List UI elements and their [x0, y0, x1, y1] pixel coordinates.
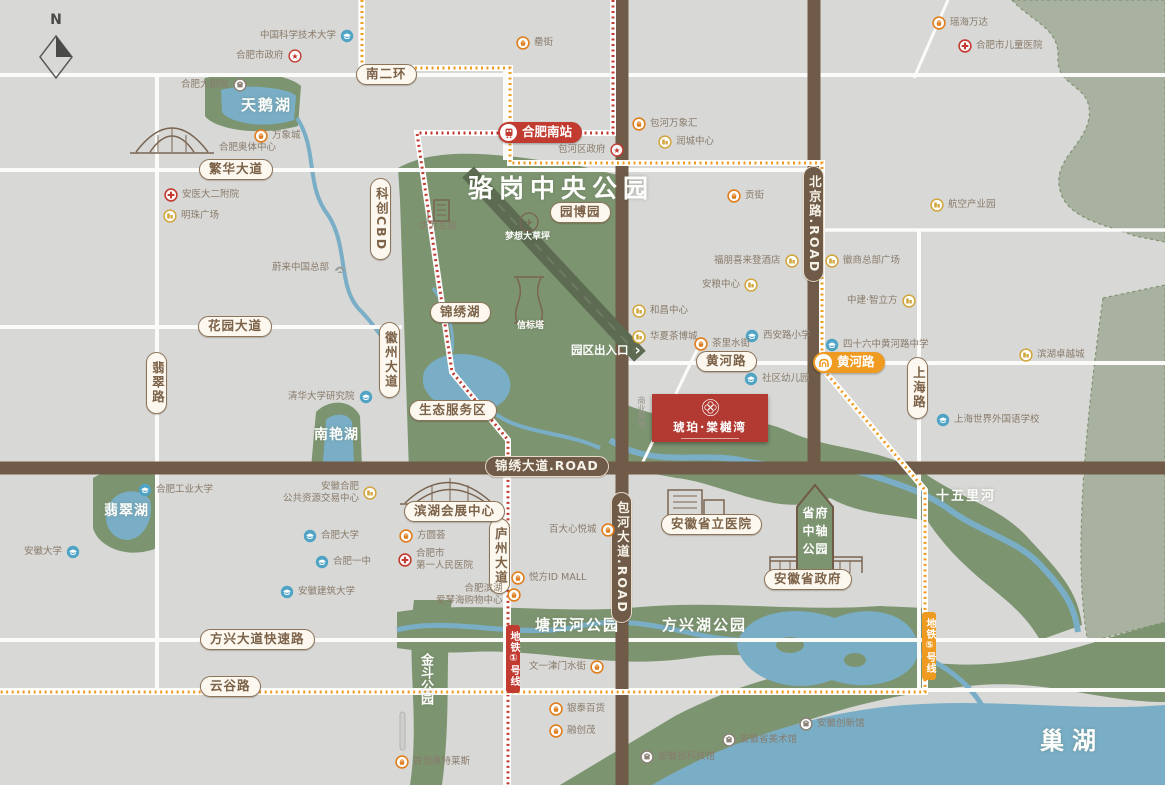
road-badge: 科创CBD	[370, 178, 391, 260]
area-label: 翡翠湖	[104, 504, 149, 518]
culture-icon	[640, 750, 654, 764]
road-badge: 安徽省政府	[764, 569, 852, 590]
poi-mall: 贡街	[727, 189, 764, 203]
poi-label: 合肥市第一人民医院	[416, 548, 473, 573]
poi-label-text: 上海世界外国语学校	[954, 414, 1040, 426]
mall-icon	[632, 117, 646, 131]
poi-label: 社区幼儿园	[762, 373, 810, 385]
poi-label-text: 文一津门水街	[529, 661, 586, 673]
poi-edu: 上海世界外国语学校	[936, 413, 1040, 427]
poi-label: 悦方ID MALL	[529, 572, 586, 584]
poi-label-line: 合肥市	[416, 548, 473, 560]
biz-icon	[632, 304, 646, 318]
edu-icon	[138, 483, 152, 497]
airplane-icon: ✈	[525, 218, 533, 229]
poi-label: 航空产业园	[948, 199, 996, 211]
poi-label: 合肥大剧院	[181, 79, 229, 91]
poi-label: 华为总部	[419, 221, 457, 233]
mall-icon	[590, 660, 604, 674]
poi-mall: 百大心悦城	[549, 523, 615, 537]
poi-label-text: 清华大学研究院	[288, 391, 355, 403]
poi-label-text: 安粮中心	[702, 279, 740, 291]
road-badge: 生态服务区	[409, 400, 497, 421]
poi-label-line: 合肥滨湖	[436, 583, 503, 595]
poi-hospital: 合肥市儿童医院	[958, 39, 1043, 53]
metro-station-hefei-south: 合肥南站	[498, 122, 582, 143]
poi-label: 合肥滨湖爱琴海购物中心	[436, 583, 503, 608]
poi-label: 中建·智立方	[847, 295, 898, 307]
poi-biz: 润城中心	[658, 135, 714, 149]
project-name-underline	[681, 438, 739, 439]
park-gate-label: 园区出入口	[571, 342, 629, 358]
poi-label-text: 润城中心	[676, 136, 714, 148]
poi-label: 包河万象汇	[650, 118, 698, 130]
metro-station-huanghe-road: 黄河路	[813, 352, 885, 373]
biz-icon	[1019, 348, 1033, 362]
edu-icon	[66, 545, 80, 559]
central-axis-line2: 中轴	[802, 522, 828, 540]
poi-hospital: 合肥市第一人民医院	[398, 548, 473, 573]
poi-label: 安徽大学	[24, 546, 62, 558]
poi-culture: 合肥大剧院	[181, 78, 247, 92]
road-badge: 翡翠路	[146, 352, 167, 414]
metro-line5-badge: 地铁⑤号线	[922, 612, 936, 680]
poi-label-text: 徽商总部广场	[843, 255, 900, 267]
poi-label-text: 合肥一中	[333, 556, 371, 568]
poi-label-text: 融创茂	[567, 725, 596, 737]
svg-text:★: ★	[613, 146, 620, 155]
poi-label-text: 万象城	[272, 130, 301, 142]
area-label: 金斗公园	[419, 653, 432, 705]
poi-edu: 西安路小学	[745, 329, 811, 343]
central-axis-line3: 公园	[802, 540, 828, 558]
lake-islet-2	[844, 653, 866, 667]
poi-label-text: 贡街	[745, 190, 764, 202]
metro-station-huanghe-road-label: 黄河路	[837, 356, 875, 369]
poi-biz: 华夏茶博城	[632, 330, 698, 344]
poi-label: 方圆荟	[417, 530, 446, 542]
poi-label: 安徽省科技馆	[658, 751, 715, 763]
poi-label: 首创奥特莱斯	[413, 756, 470, 768]
poi-label-line: 第一人民医院	[416, 560, 473, 572]
poi-label: 徽商总部广场	[843, 255, 900, 267]
chevron-right-icon: ›	[635, 343, 641, 358]
poi-label: 安徽建筑大学	[298, 586, 355, 598]
poi-label-line: 安徽合肥	[283, 481, 359, 493]
poi-label: 合肥一中	[333, 556, 371, 568]
scale-marker	[400, 712, 405, 750]
biz-icon	[825, 254, 839, 268]
road-badge: 黄河路	[696, 351, 757, 372]
poi-label: 融创茂	[567, 725, 596, 737]
poi-label-text: 和昌中心	[650, 305, 688, 317]
compass-label-wrap: N	[32, 12, 80, 29]
mall-icon	[549, 724, 563, 738]
poi-label: 和昌中心	[650, 305, 688, 317]
edu-icon	[744, 372, 758, 386]
poi-label-text: 西安路小学	[763, 330, 811, 342]
poi-mall: 首创奥特莱斯	[395, 755, 470, 769]
arterial-road-badge: 北京路.ROAD	[803, 166, 824, 282]
area-label: 天鹅湖	[241, 98, 292, 113]
biz-icon	[744, 278, 758, 292]
culture-icon	[722, 733, 736, 747]
poi-biz: 安粮中心	[702, 278, 758, 292]
poi-label-text: 合肥市政府	[236, 50, 284, 62]
poi-label-text: 中国科学技术大学	[260, 30, 336, 42]
biz-icon	[363, 486, 377, 500]
fangxing-lake	[737, 611, 918, 686]
poi-label-text: 安徽创新馆	[817, 718, 865, 730]
mall-icon	[549, 702, 563, 716]
mall-icon	[507, 588, 521, 602]
poi-label: 润城中心	[676, 136, 714, 148]
biz-icon	[902, 294, 916, 308]
road-badge: 云谷路	[200, 676, 261, 697]
train-icon	[500, 124, 517, 141]
road-badge: 繁华大道	[199, 159, 273, 180]
poi-label-text: 银泰百货	[567, 703, 605, 715]
road-badge: 上海路	[907, 357, 928, 419]
biz-icon	[163, 209, 177, 223]
central-axis-line1: 省府	[802, 504, 828, 522]
gov-icon: ★	[610, 143, 624, 157]
poi-biz: 中建·智立方	[847, 294, 916, 308]
poi-label-text: 华夏茶博城	[650, 331, 698, 343]
hospital-icon	[958, 39, 972, 53]
area-label: 梦想大草坪	[505, 233, 550, 242]
poi-gov: 合肥市政府★	[236, 49, 302, 63]
biz-icon	[930, 198, 944, 212]
poi-biz: 滨湖卓越城	[1019, 348, 1085, 362]
poi-label-text: 罍街	[534, 37, 553, 49]
road-badge: 园博园	[550, 202, 611, 223]
culture-icon	[233, 78, 247, 92]
poi-label: 瑶海万达	[950, 17, 988, 29]
poi-label-text: 安徽大学	[24, 546, 62, 558]
poi-label-text: 首创奥特莱斯	[413, 756, 470, 768]
road-badge: 南二环	[356, 64, 417, 85]
poi-mall: 文一津门水街	[529, 660, 604, 674]
poi-label: 安徽创新馆	[817, 718, 865, 730]
poi-edu: 合肥一中	[315, 555, 371, 569]
poi-label-line: 公共资源交易中心	[283, 493, 359, 505]
poi-edu: 合肥大学	[303, 529, 359, 543]
poi-label-text: 四十六中黄河路中学	[843, 339, 929, 351]
mall-icon	[727, 189, 741, 203]
edu-icon	[280, 585, 294, 599]
mall-icon	[395, 755, 409, 769]
road-badge: 锦绣湖	[430, 302, 491, 323]
area-label: 商业用地	[637, 396, 645, 428]
poi-mall: 包河万象汇	[632, 117, 698, 131]
nio-icon	[333, 261, 347, 275]
edu-icon	[825, 338, 839, 352]
poi-mall: 银泰百货	[549, 702, 605, 716]
poi-label-text: 包河万象汇	[650, 118, 698, 130]
poi-edu: 安徽建筑大学	[280, 585, 355, 599]
poi-label: 华夏茶博城	[650, 331, 698, 343]
poi-label-text: 安医大二附院	[182, 189, 239, 201]
poi-edu: 合肥工业大学	[138, 483, 213, 497]
poi-label: 安徽合肥公共资源交易中心	[283, 481, 359, 506]
poi-label: 蔚来中国总部	[272, 262, 329, 274]
poi-mall: 茶里水街	[694, 337, 750, 351]
poi-gov: 包河区政府★	[558, 143, 624, 157]
poi-label-text: 滨湖卓越城	[1037, 349, 1085, 361]
poi-edu: 安徽大学	[24, 545, 80, 559]
poi-label-text: 合肥大学	[321, 530, 359, 542]
poi-label-text: 安徽建筑大学	[298, 586, 355, 598]
edu-icon	[359, 390, 373, 404]
poi-label: 合肥大学	[321, 530, 359, 542]
poi-label: 安粮中心	[702, 279, 740, 291]
poi-edu: 清华大学研究院	[288, 390, 373, 404]
mall-icon	[511, 571, 525, 585]
poi-biz: 徽商总部广场	[825, 254, 900, 268]
arterial-road-badge: 锦绣大道.ROAD	[485, 456, 609, 477]
poi-biz: 和昌中心	[632, 304, 688, 318]
mall-icon	[399, 529, 413, 543]
biz-icon	[632, 330, 646, 344]
poi-label-text: 安徽省美术馆	[740, 734, 797, 746]
road-badge: 滨湖会展中心	[404, 501, 505, 522]
biz-icon	[658, 135, 672, 149]
poi-label: 合肥奥体中心	[219, 142, 276, 154]
poi-label-text: 蔚来中国总部	[272, 262, 329, 274]
poi-biz: 明珠广场	[163, 209, 219, 223]
poi-label-text: 中建·智立方	[847, 295, 898, 307]
poi-label: 百大心悦城	[549, 524, 597, 536]
location-map: ✈ N	[0, 0, 1165, 785]
area-label: 方兴湖公园	[662, 618, 747, 633]
central-axis-park-label: 省府 中轴 公园	[797, 504, 834, 558]
poi-label: 福朋喜来登酒店	[714, 255, 781, 267]
road-badge: 徽州大道	[379, 322, 400, 398]
poi-label: 清华大学研究院	[288, 391, 355, 403]
poi-mall: 悦方ID MALL	[511, 571, 586, 585]
poi-label: 合肥市儿童医院	[976, 40, 1043, 52]
area-label: 塘西河公园	[535, 618, 620, 633]
poi-biz: 航空产业园	[930, 198, 996, 212]
project-flower-logo	[701, 398, 720, 417]
compass-n-label: N	[32, 12, 80, 28]
poi-mall: 瑶海万达	[932, 16, 988, 30]
poi-label-text: 合肥奥体中心	[219, 142, 276, 154]
poi-edu: 中国科学技术大学	[260, 29, 354, 43]
area-label: 骆岗中央公园	[468, 176, 654, 201]
road-badge: 安徽省立医院	[661, 514, 762, 535]
poi-edu: 社区幼儿园	[744, 372, 810, 386]
gov-icon: ★	[288, 49, 302, 63]
poi-label: 中国科学技术大学	[260, 30, 336, 42]
culture-icon	[799, 717, 813, 731]
mall-icon	[254, 129, 268, 143]
edu-icon	[340, 29, 354, 43]
poi-label: 罍街	[534, 37, 553, 49]
area-label: 十五里河	[936, 490, 996, 503]
poi-label-line: 爱琴海购物中心	[436, 595, 503, 607]
poi-label-text: 百大心悦城	[549, 524, 597, 536]
road-badge: 花园大道	[198, 316, 272, 337]
poi-label: 包河区政府	[558, 144, 606, 156]
poi-label: 安医大二附院	[182, 189, 239, 201]
poi-mall: 融创茂	[549, 724, 596, 738]
edu-icon	[936, 413, 950, 427]
edu-icon	[315, 555, 329, 569]
poi-label: 银泰百货	[567, 703, 605, 715]
poi-culture: 安徽创新馆	[799, 717, 865, 731]
poi-label-text: 明珠广场	[181, 210, 219, 222]
hospital-icon	[398, 553, 412, 567]
poi-edu: 四十六中黄河路中学	[825, 338, 929, 352]
poi-biz: 安徽合肥公共资源交易中心	[283, 481, 377, 506]
area-label: 信标塔	[517, 322, 544, 331]
poi-label-text: 航空产业园	[948, 199, 996, 211]
poi-label-text: 安徽省科技馆	[658, 751, 715, 763]
metro-line1-badge: 地铁①号线	[506, 625, 520, 693]
mall-icon	[932, 16, 946, 30]
poi-nio: 蔚来中国总部	[272, 261, 347, 275]
poi-none: 合肥奥体中心	[219, 142, 276, 154]
metro-station-hefei-south-label: 合肥南站	[522, 126, 572, 139]
poi-label: 上海世界外国语学校	[954, 414, 1040, 426]
poi-label-text: 合肥市儿童医院	[976, 40, 1043, 52]
poi-label: 合肥市政府	[236, 50, 284, 62]
road-badge: 方兴大道快速路	[200, 629, 315, 650]
metro-icon	[815, 354, 832, 371]
poi-mall: 方圆荟	[399, 529, 446, 543]
poi-label-text: 华为总部	[419, 221, 457, 233]
area-label: 巢湖	[1040, 729, 1104, 753]
hospital-icon	[164, 188, 178, 202]
poi-label-text: 福朋喜来登酒店	[714, 255, 781, 267]
poi-label: 安徽省美术馆	[740, 734, 797, 746]
edu-icon	[303, 529, 317, 543]
poi-label-text: 合肥工业大学	[156, 484, 213, 496]
svg-text:★: ★	[291, 52, 298, 61]
poi-culture: 安徽省科技馆	[640, 750, 715, 764]
poi-mall: 万象城	[254, 129, 301, 143]
poi-label: 滨湖卓越城	[1037, 349, 1085, 361]
poi-label-text: 方圆荟	[417, 530, 446, 542]
area-label: 南艳湖	[314, 428, 359, 442]
poi-label-text: 瑶海万达	[950, 17, 988, 29]
poi-label-text: 包河区政府	[558, 144, 606, 156]
arterial-road-badge: 包河大道.ROAD	[611, 492, 632, 623]
poi-label: 四十六中黄河路中学	[843, 339, 929, 351]
poi-label-text: 悦方ID MALL	[529, 572, 586, 584]
poi-label-text: 合肥大剧院	[181, 79, 229, 91]
poi-label: 合肥工业大学	[156, 484, 213, 496]
poi-label: 明珠广场	[181, 210, 219, 222]
biz-icon	[785, 254, 799, 268]
project-name: 琥珀·棠樾湾	[673, 419, 747, 435]
poi-label: 万象城	[272, 130, 301, 142]
poi-none: 华为总部	[419, 221, 457, 233]
poi-label: 文一津门水街	[529, 661, 586, 673]
mall-icon	[601, 523, 615, 537]
poi-mall: 合肥滨湖爱琴海购物中心	[436, 583, 521, 608]
poi-label-text: 茶里水街	[712, 338, 750, 350]
poi-label-text: 社区幼儿园	[762, 373, 810, 385]
poi-label: 茶里水街	[712, 338, 750, 350]
poi-culture: 安徽省美术馆	[722, 733, 797, 747]
poi-hospital: 安医大二附院	[164, 188, 239, 202]
poi-label: 贡街	[745, 190, 764, 202]
mall-icon	[516, 36, 530, 50]
poi-label: 西安路小学	[763, 330, 811, 342]
project-marker: 琥珀·棠樾湾	[652, 394, 768, 442]
park-gate: 园区出入口 ›	[571, 342, 641, 358]
poi-biz: 福朋喜来登酒店	[714, 254, 799, 268]
mall-icon	[694, 337, 708, 351]
poi-mall: 罍街	[516, 36, 553, 50]
